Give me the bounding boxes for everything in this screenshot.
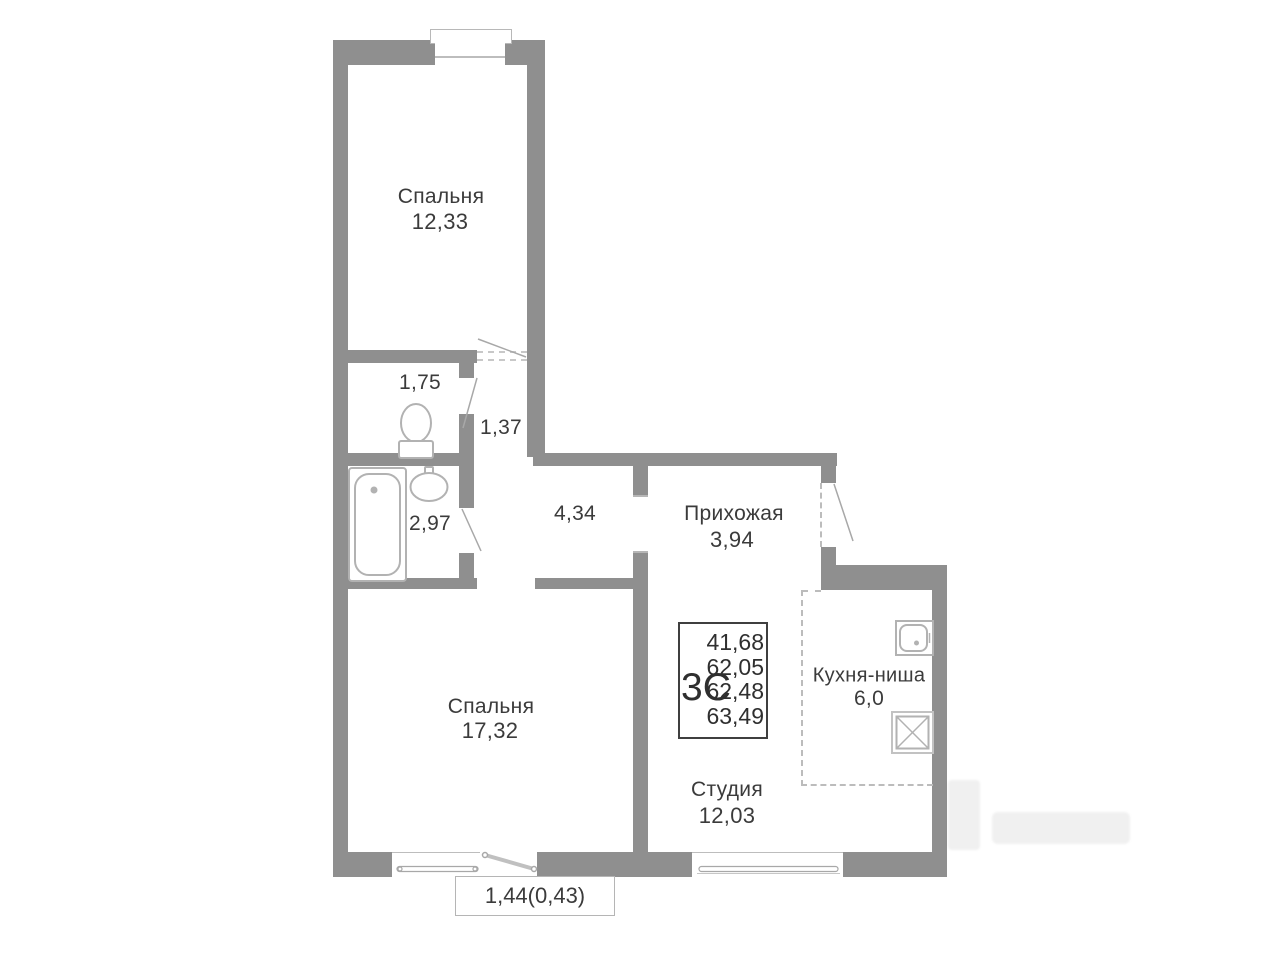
studio-name: Студия (691, 778, 763, 802)
bedroom-top-name: Спальня (398, 185, 484, 209)
watermark-text (992, 812, 1130, 844)
toilet-icon (399, 404, 433, 458)
balcony-outline: 1,44(0,43) (455, 876, 615, 916)
area-value-4: 63,49 (706, 704, 764, 729)
bathtub-icon (349, 468, 406, 581)
watermark (948, 780, 980, 850)
balcony-door-leaf (483, 853, 537, 872)
stove-icon (892, 712, 933, 753)
kitchen-sink-icon (896, 621, 933, 655)
studio-window-glass (697, 867, 840, 874)
kitchen-name: Кухня-ниша (813, 665, 926, 688)
entry-door-leaf (834, 484, 853, 541)
entry-name: Прихожая (684, 502, 784, 526)
apartment-info-box: 3С 41,68 62,05 62,48 63,49 (678, 622, 768, 739)
studio-area: 12,03 (699, 803, 756, 829)
bedroom1-door-leaf (478, 339, 526, 357)
corridor-area: 1,37 (480, 416, 522, 440)
hall-area: 4,34 (554, 502, 596, 526)
bedroom-bottom-name: Спальня (448, 695, 534, 719)
wc-area: 1,75 (399, 371, 441, 395)
bedroom-bottom-area: 17,32 (462, 718, 519, 744)
area-value-3: 62,48 (706, 679, 764, 704)
balcony-dimension-label: 1,44(0,43) (485, 883, 585, 909)
area-value-2: 62,05 (706, 655, 764, 680)
area-value-1: 41,68 (706, 630, 764, 655)
bedroom2-window-glass (397, 867, 478, 872)
kitchen-area: 6,0 (854, 687, 884, 711)
wc-door-leaf (463, 378, 477, 428)
bedroom-top-area: 12,33 (412, 209, 469, 235)
bathroom-area: 2,97 (409, 512, 451, 536)
bathroom-door-leaf (462, 509, 481, 551)
entry-area: 3,94 (710, 527, 754, 553)
sink-icon (411, 467, 448, 501)
floorplan-canvas: Спальня 12,33 1,75 1,37 2,97 4,34 Прихож… (0, 0, 1280, 960)
apartment-area-values: 41,68 62,05 62,48 63,49 (706, 630, 764, 728)
